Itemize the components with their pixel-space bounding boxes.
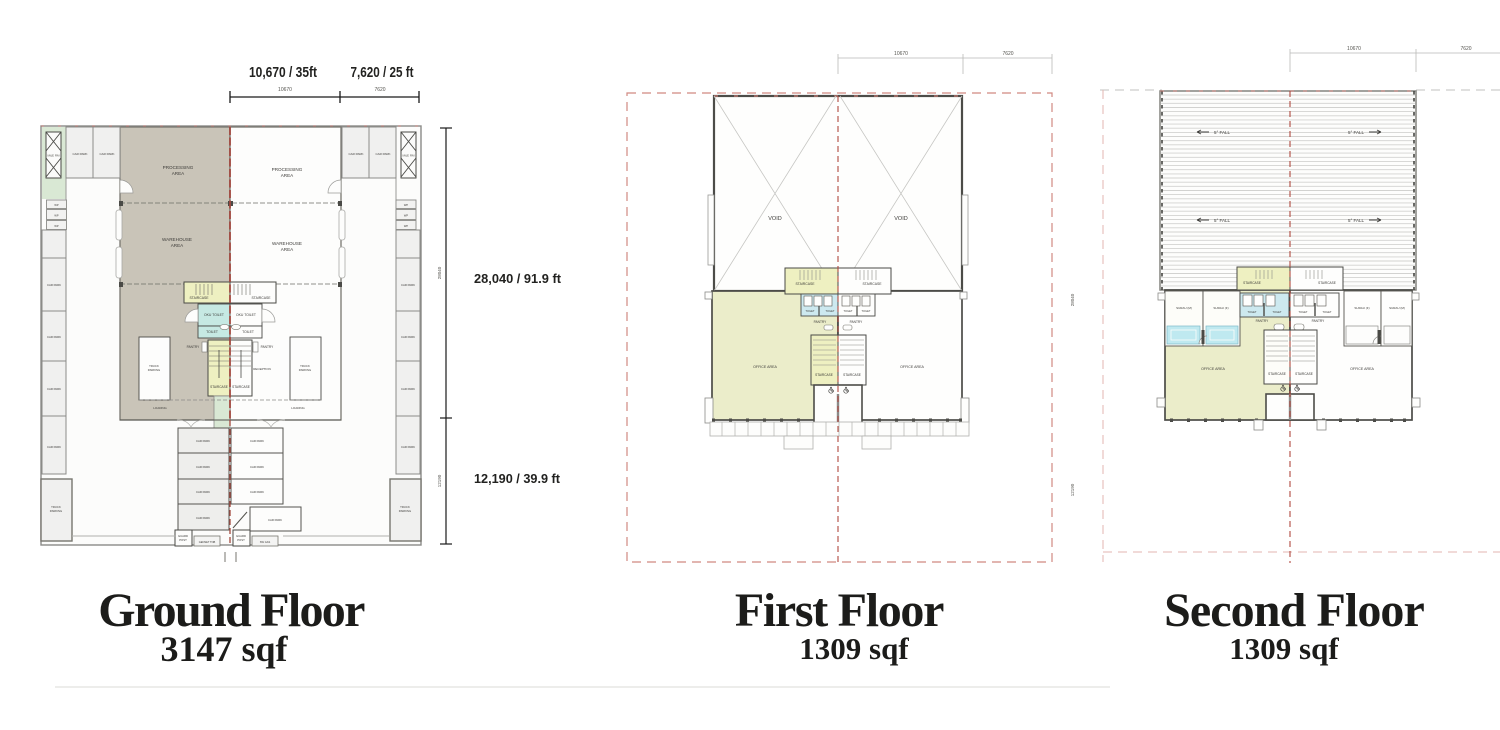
svg-text:TOILET: TOILET bbox=[1298, 310, 1307, 314]
svg-text:CAR PARK: CAR PARK bbox=[401, 445, 415, 449]
svg-text:CAR PARK: CAR PARK bbox=[196, 490, 210, 494]
svg-text:CAR PARK: CAR PARK bbox=[401, 387, 415, 391]
svg-text:SURAU (M): SURAU (M) bbox=[1389, 306, 1405, 310]
svg-text:POST: POST bbox=[237, 538, 245, 542]
svg-text:PANTRY: PANTRY bbox=[1312, 319, 1326, 323]
svg-text:TOILET: TOILET bbox=[206, 330, 218, 334]
svg-text:CAR PARK: CAR PARK bbox=[47, 283, 61, 287]
svg-text:WP: WP bbox=[54, 214, 58, 218]
svg-text:WAREHOUSE: WAREHOUSE bbox=[272, 241, 302, 246]
svg-text:POST: POST bbox=[179, 538, 187, 542]
svg-text:PARKING: PARKING bbox=[399, 509, 411, 513]
svg-text:SURAU (F): SURAU (F) bbox=[1354, 306, 1369, 310]
svg-text:STAIRCASE: STAIRCASE bbox=[815, 373, 833, 377]
svg-text:CAR PARK: CAR PARK bbox=[401, 335, 415, 339]
svg-text:Second Floor: Second Floor bbox=[1164, 584, 1424, 637]
svg-text:PARKING: PARKING bbox=[299, 368, 311, 372]
svg-text:CAR PARK: CAR PARK bbox=[196, 439, 210, 443]
svg-text:WP: WP bbox=[54, 203, 58, 207]
svg-text:LOADING: LOADING bbox=[153, 406, 167, 410]
svg-text:TOILET: TOILET bbox=[861, 309, 870, 313]
svg-text:PROCESSING: PROCESSING bbox=[272, 167, 303, 172]
svg-text:10670: 10670 bbox=[894, 51, 908, 57]
svg-text:OKU TOILET: OKU TOILET bbox=[236, 313, 256, 317]
svg-text:OFFICE AREA: OFFICE AREA bbox=[900, 365, 924, 369]
svg-text:28040: 28040 bbox=[1070, 293, 1075, 306]
svg-text:AREA: AREA bbox=[281, 173, 294, 178]
svg-text:STAIRCASE: STAIRCASE bbox=[190, 296, 210, 300]
svg-text:M&E RM: M&E RM bbox=[48, 154, 61, 158]
svg-text:OFFICE AREA: OFFICE AREA bbox=[1201, 367, 1225, 371]
svg-text:TOILET: TOILET bbox=[825, 309, 834, 313]
svg-text:VOID: VOID bbox=[894, 216, 907, 222]
svg-text:STAIRCASE: STAIRCASE bbox=[843, 373, 861, 377]
svg-text:PANTRY: PANTRY bbox=[187, 345, 201, 349]
svg-text:7620: 7620 bbox=[1002, 51, 1013, 57]
svg-text:PARKING: PARKING bbox=[50, 509, 62, 513]
svg-text:RECEPTION: RECEPTION bbox=[253, 367, 271, 371]
svg-text:12,190 / 39.9 ft: 12,190 / 39.9 ft bbox=[474, 472, 561, 486]
svg-text:CAR PARK: CAR PARK bbox=[250, 490, 264, 494]
svg-text:1309 sqf: 1309 sqf bbox=[799, 631, 909, 666]
svg-text:M&E RM: M&E RM bbox=[403, 154, 416, 158]
svg-text:10670: 10670 bbox=[278, 87, 292, 93]
svg-text:STAIRCASE: STAIRCASE bbox=[1268, 372, 1286, 376]
svg-text:PANTRY: PANTRY bbox=[850, 320, 864, 324]
svg-text:STAIRCASE: STAIRCASE bbox=[1318, 281, 1336, 285]
svg-text:PANTRY: PANTRY bbox=[814, 320, 828, 324]
svg-text:WP: WP bbox=[404, 203, 408, 207]
svg-text:STAIRCASE: STAIRCASE bbox=[232, 385, 250, 389]
svg-text:CAR PARK: CAR PARK bbox=[250, 439, 264, 443]
svg-text:CAR PARK: CAR PARK bbox=[196, 516, 210, 520]
svg-text:STAIRCASE: STAIRCASE bbox=[210, 385, 228, 389]
svg-text:STAIRCASE: STAIRCASE bbox=[1295, 372, 1313, 376]
svg-text:7620: 7620 bbox=[1460, 46, 1471, 52]
svg-text:OFFICE AREA: OFFICE AREA bbox=[1350, 367, 1374, 371]
svg-text:28,040 / 91.9 ft: 28,040 / 91.9 ft bbox=[474, 272, 562, 286]
svg-text:SW GAS: SW GAS bbox=[260, 540, 271, 544]
svg-text:CAR PARK: CAR PARK bbox=[47, 387, 61, 391]
svg-text:First Floor: First Floor bbox=[735, 584, 944, 637]
svg-text:TOILET: TOILET bbox=[1272, 310, 1281, 314]
svg-text:CAR PARK: CAR PARK bbox=[47, 335, 61, 339]
svg-text:CAR PARK: CAR PARK bbox=[99, 152, 114, 156]
svg-text:VOID: VOID bbox=[768, 216, 781, 222]
svg-text:PROCESSING: PROCESSING bbox=[163, 165, 194, 170]
svg-text:CAR PARK: CAR PARK bbox=[348, 152, 363, 156]
svg-text:12190: 12190 bbox=[437, 474, 442, 487]
svg-text:CAR PARK: CAR PARK bbox=[72, 152, 87, 156]
svg-text:STAIRCASE: STAIRCASE bbox=[1243, 281, 1261, 285]
svg-text:10670: 10670 bbox=[1347, 46, 1361, 52]
svg-text:TOILET: TOILET bbox=[242, 330, 254, 334]
svg-text:5° FALL: 5° FALL bbox=[1348, 130, 1365, 135]
svg-text:WP: WP bbox=[54, 224, 58, 228]
svg-text:5° FALL: 5° FALL bbox=[1348, 218, 1365, 223]
svg-text:WP: WP bbox=[404, 214, 408, 218]
svg-text:7620: 7620 bbox=[374, 87, 385, 93]
svg-text:1309 sqf: 1309 sqf bbox=[1229, 631, 1339, 666]
svg-text:OFFICE AREA: OFFICE AREA bbox=[753, 365, 777, 369]
svg-text:TOILET: TOILET bbox=[805, 309, 814, 313]
svg-text:5° FALL: 5° FALL bbox=[1214, 218, 1231, 223]
svg-text:WAREHOUSE: WAREHOUSE bbox=[162, 237, 192, 242]
svg-text:SURAU (M): SURAU (M) bbox=[1176, 306, 1192, 310]
svg-text:3147 sqf: 3147 sqf bbox=[160, 629, 288, 669]
svg-text:STAIRCASE: STAIRCASE bbox=[863, 282, 883, 286]
svg-text:WP: WP bbox=[404, 224, 408, 228]
svg-text:AREA: AREA bbox=[172, 171, 185, 176]
svg-text:CAR PARK: CAR PARK bbox=[268, 518, 282, 522]
svg-text:CAR PARK: CAR PARK bbox=[250, 465, 264, 469]
svg-text:PARKING: PARKING bbox=[148, 368, 160, 372]
svg-text:CAR PARK: CAR PARK bbox=[375, 152, 390, 156]
svg-text:PANTRY: PANTRY bbox=[261, 345, 275, 349]
svg-text:12190: 12190 bbox=[1070, 483, 1075, 496]
svg-text:CAR PARK: CAR PARK bbox=[401, 283, 415, 287]
svg-text:STAIRCASE: STAIRCASE bbox=[252, 296, 272, 300]
svg-text:PANTRY: PANTRY bbox=[1256, 319, 1270, 323]
svg-text:SURAU (F): SURAU (F) bbox=[1213, 306, 1228, 310]
svg-text:28040: 28040 bbox=[437, 266, 442, 279]
svg-text:TOILET: TOILET bbox=[1247, 310, 1256, 314]
svg-text:AREA: AREA bbox=[171, 243, 184, 248]
svg-text:TOILET: TOILET bbox=[843, 309, 852, 313]
svg-text:CAR PARK: CAR PARK bbox=[196, 465, 210, 469]
svg-text:TOILET: TOILET bbox=[1322, 310, 1331, 314]
svg-text:AREA: AREA bbox=[281, 247, 294, 252]
svg-text:LOADING: LOADING bbox=[291, 406, 305, 410]
svg-text:5° FALL: 5° FALL bbox=[1214, 130, 1231, 135]
svg-text:STAIRCASE: STAIRCASE bbox=[796, 282, 816, 286]
svg-text:CAR PARK: CAR PARK bbox=[47, 445, 61, 449]
svg-text:7,620 / 25 ft: 7,620 / 25 ft bbox=[351, 64, 414, 81]
svg-text:GENSET TNB: GENSET TNB bbox=[199, 540, 216, 544]
svg-text:10,670 / 35ft: 10,670 / 35ft bbox=[249, 64, 317, 81]
svg-text:OKU TOILET: OKU TOILET bbox=[204, 313, 224, 317]
